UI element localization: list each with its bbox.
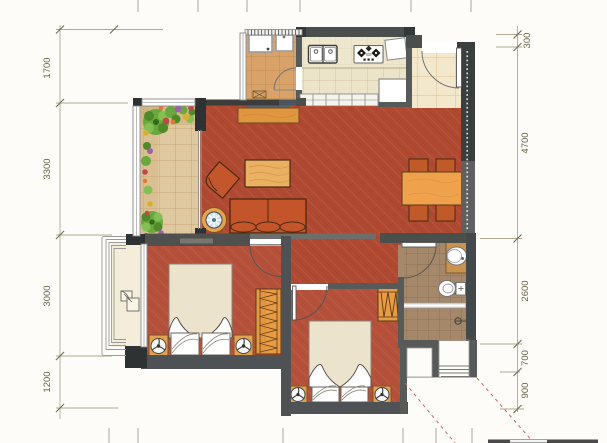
svg-text:1200: 1200 xyxy=(42,371,53,392)
svg-text:4700: 4700 xyxy=(520,132,531,153)
svg-text:2600: 2600 xyxy=(520,280,531,301)
svg-text:300: 300 xyxy=(522,33,533,49)
svg-text:900: 900 xyxy=(520,383,531,399)
svg-text:1700: 1700 xyxy=(42,57,53,78)
svg-text:3000: 3000 xyxy=(42,285,53,306)
svg-text:3300: 3300 xyxy=(42,158,53,179)
svg-text:700: 700 xyxy=(520,350,531,366)
